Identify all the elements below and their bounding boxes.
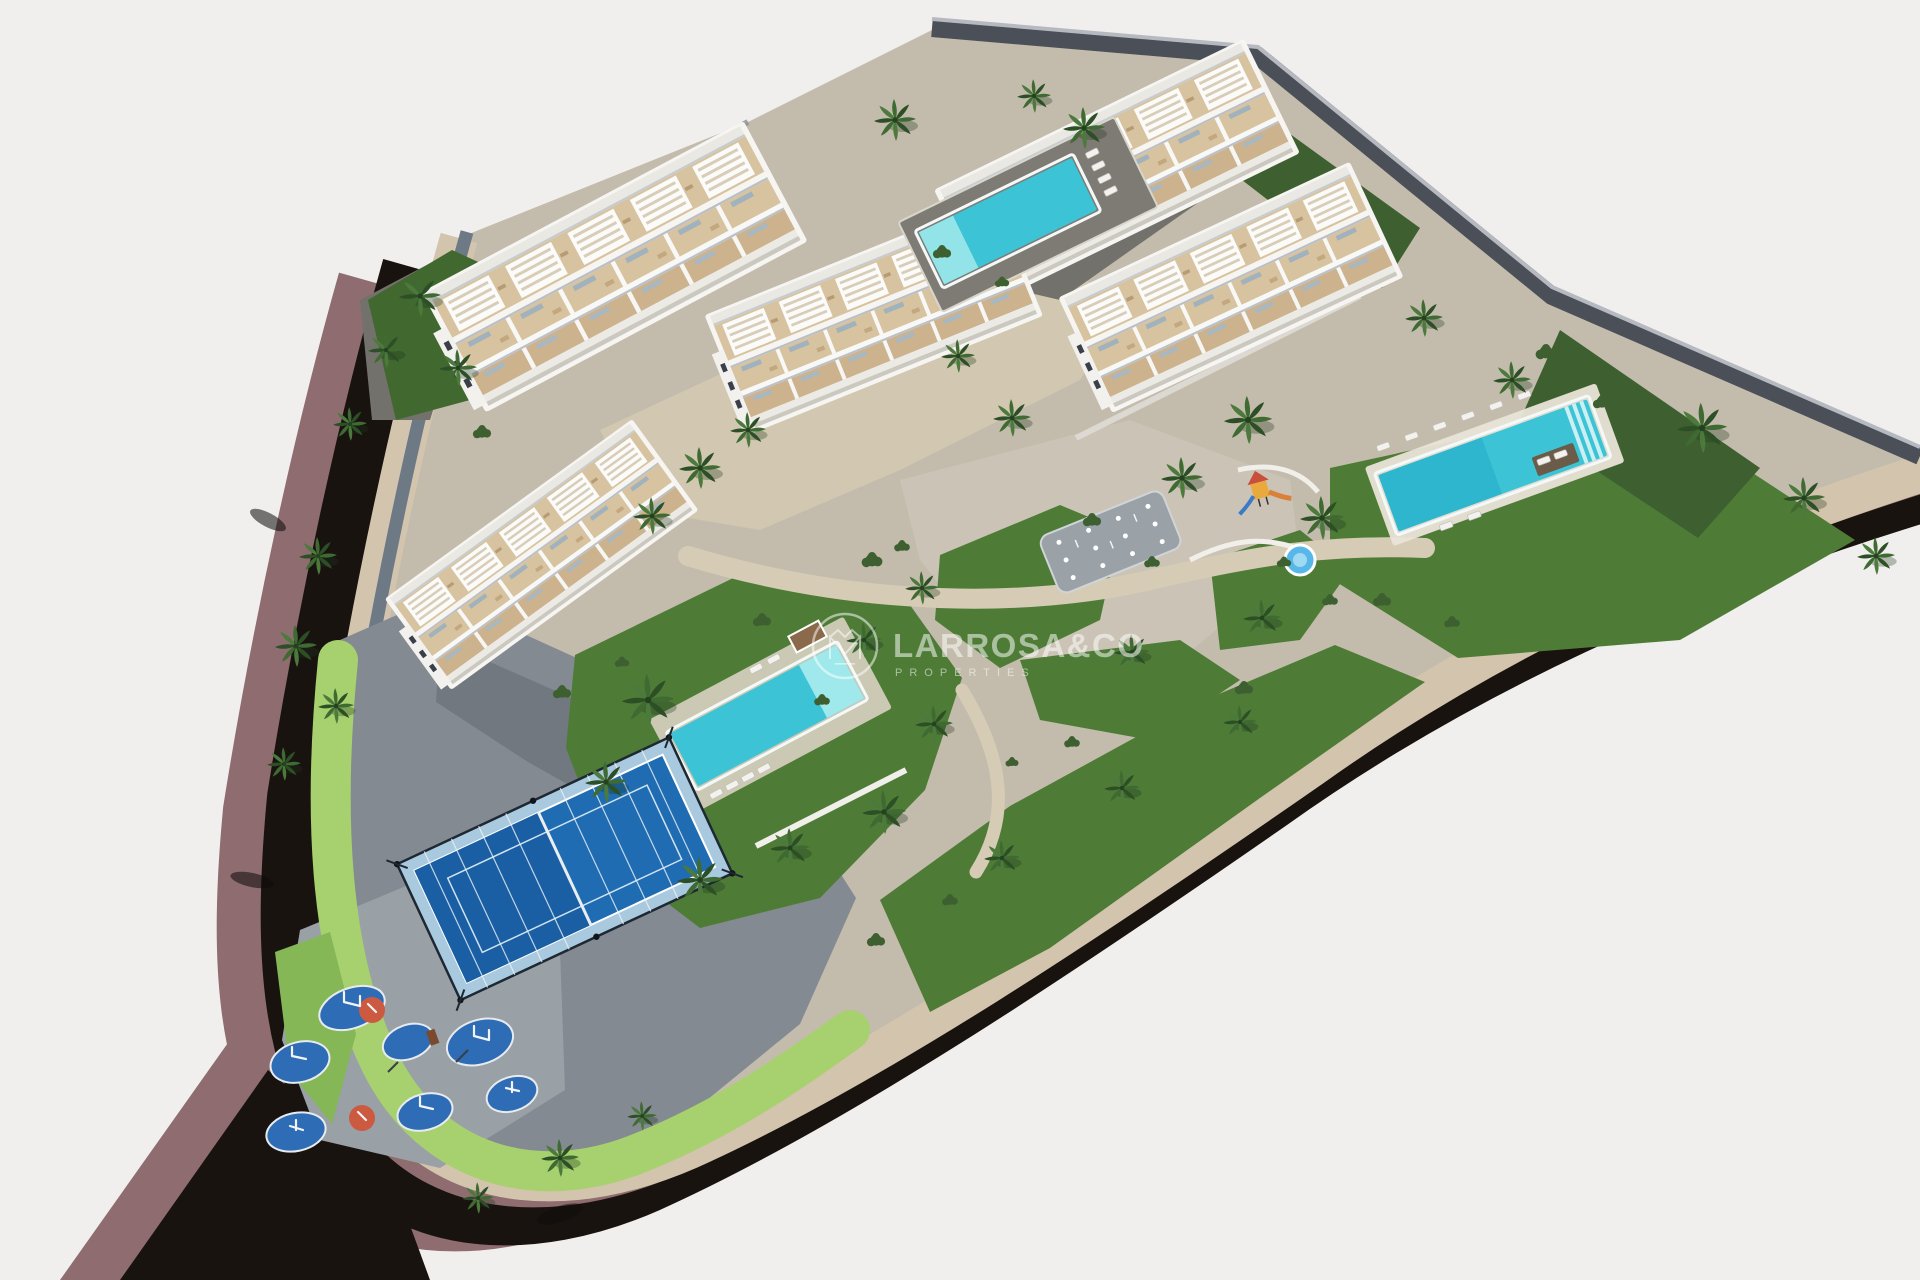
watermark-brand: LARROSA&CO — [893, 627, 1145, 664]
watermark-subtitle: PROPERTIES — [895, 667, 1036, 679]
site-render: LARROSA&CO PROPERTIES — [0, 0, 1920, 1280]
kiddie-pool-center — [1293, 553, 1307, 567]
render-canvas: LARROSA&CO PROPERTIES — [0, 0, 1920, 1280]
